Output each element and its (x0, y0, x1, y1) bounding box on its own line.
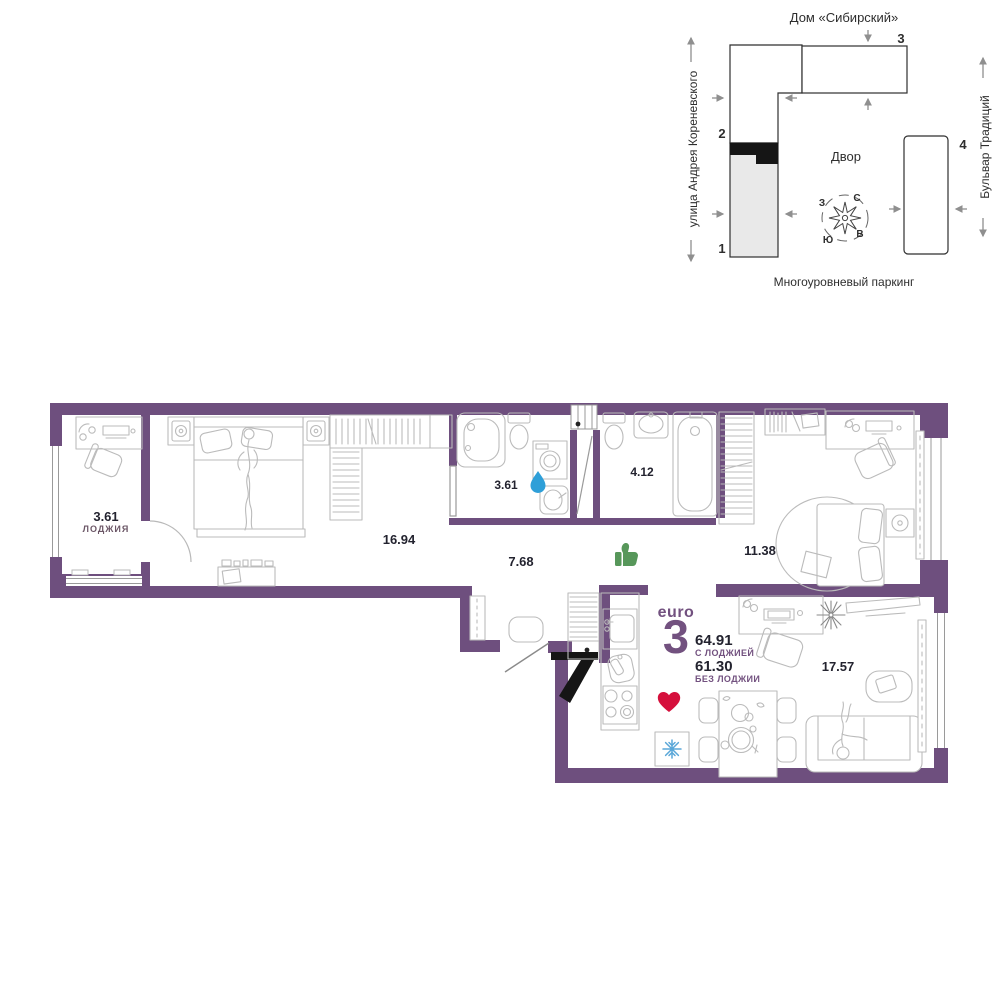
site-plan-map: С З В Ю Дом «Сибирский» Двор Многоуровне… (660, 0, 1000, 300)
heart-icon (658, 692, 680, 712)
area-without-loggia: 61.30 (695, 658, 733, 675)
building-4-label: 4 (959, 137, 967, 152)
niche-door-line (577, 436, 592, 514)
bathroom-small-area-label: 3.61 (494, 478, 518, 492)
closet-handle-dot (585, 648, 590, 653)
area-with-loggia-label: С ЛОДЖИЕЙ (695, 647, 754, 658)
bathroom-area-label: 4.12 (630, 465, 654, 479)
bathroom-small-fixtures (457, 413, 568, 514)
area-without-loggia-label: БЕЗ ЛОДЖИИ (695, 674, 760, 684)
bedroom2-furniture (719, 409, 924, 591)
building-3-label: 3 (897, 31, 904, 46)
street-right-label: Бульвар Традиций (978, 95, 992, 199)
sofa (806, 716, 922, 772)
compass-south: Ю (823, 235, 833, 246)
building-2-label: 2 (718, 126, 725, 141)
dresser (218, 560, 275, 586)
plant (817, 601, 845, 629)
bedroom-area-label: 16.94 (383, 532, 416, 547)
loggia-name-label: ЛОДЖИЯ (83, 524, 130, 534)
oval-bed (776, 497, 884, 591)
building-1-label: 1 (718, 241, 725, 256)
double-bed (194, 417, 305, 537)
compass-east: В (856, 229, 863, 240)
compass-rose: С З В Ю (819, 193, 868, 246)
compass-west: З (819, 198, 825, 209)
hallway-area-label: 7.68 (508, 554, 533, 569)
loggia-furniture (76, 417, 142, 479)
building-2-outline (730, 45, 802, 143)
site-title: Дом «Сибирский» (790, 10, 899, 25)
snowflake-icon (663, 740, 681, 758)
stove (603, 686, 637, 724)
apartment-rooms-count: 3 (663, 610, 689, 663)
building-3-outline (802, 46, 907, 93)
entrance-swing-line (505, 643, 549, 672)
bedroom2-area-label: 11.38 (744, 543, 776, 558)
bathtub (673, 412, 717, 516)
thumbs-up-icon (615, 543, 638, 566)
bathroom-door-leaf (450, 466, 456, 516)
desk-chair2 (851, 437, 897, 481)
entry-closet (568, 593, 599, 659)
dining-table (699, 691, 796, 777)
apartment-floor-plan: 3.61 ЛОДЖИЯ 16.94 3.61 7.68 4.12 11.38 1… (40, 395, 960, 800)
street-left-label: улица Андрея Кореневского (686, 70, 700, 227)
bedroom-furniture (168, 415, 452, 586)
bathroom-fixtures (603, 412, 717, 516)
courtyard-label: Двор (831, 149, 861, 164)
loggia-chair (84, 443, 124, 479)
floorplan-page: С З В Ю Дом «Сибирский» Двор Многоуровне… (0, 0, 1000, 1000)
windows (50, 405, 948, 748)
door-hinge-dot (576, 422, 581, 427)
compass-north: С (853, 193, 860, 204)
tv (846, 597, 920, 616)
living-room-furniture (699, 596, 926, 777)
building-4-outline (904, 136, 948, 254)
wardrobe-l-shaped (330, 415, 452, 520)
apartment-type-block: euro 3 64.91 С ЛОДЖИЕЙ 61.30 БЕЗ ЛОДЖИИ (658, 604, 761, 684)
parking-label: Многоуровневый паркинг (774, 275, 915, 289)
loggia-area-label: 3.61 (93, 509, 118, 524)
living-area-label: 17.57 (822, 659, 855, 674)
bedroom-door-arc (150, 521, 191, 562)
area-with-loggia: 64.91 (695, 632, 733, 649)
